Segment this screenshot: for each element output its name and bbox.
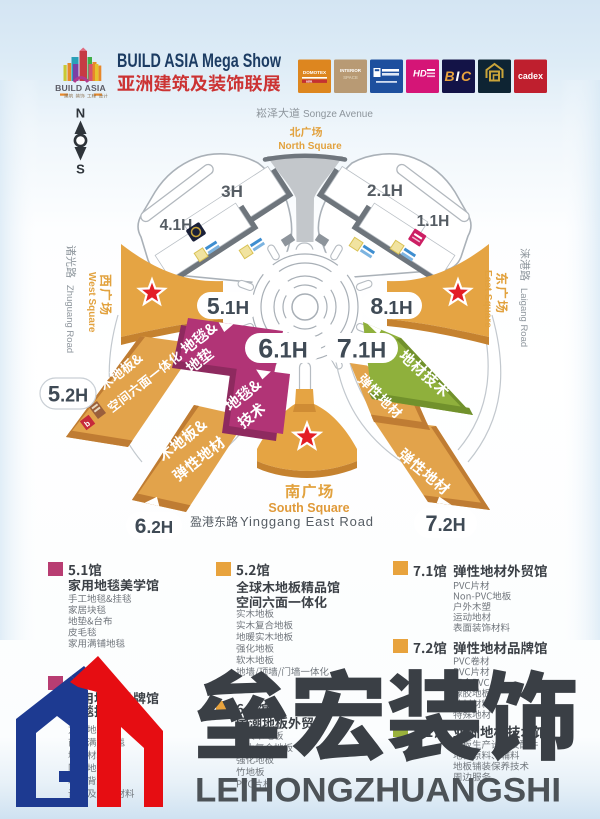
svg-text:1.1H: 1.1H [417,213,450,230]
svg-text:Songze Avenue: Songze Avenue [303,109,373,120]
svg-text:asia: asia [306,80,312,84]
svg-text:6.1H: 6.1H [258,334,307,364]
svg-text:North Square: North Square [278,141,342,152]
svg-text:South Square: South Square [268,501,349,515]
svg-text:BUILD ASIA Mega Show: BUILD ASIA Mega Show [117,51,281,72]
svg-text:cadex: cadex [518,71,543,81]
svg-text:2.1H: 2.1H [367,181,403,200]
svg-text:N: N [76,106,85,121]
svg-text:3H: 3H [221,182,243,201]
svg-text:West Square: West Square [86,272,97,333]
svg-text:DOMOTEX: DOMOTEX [303,70,327,75]
svg-text:Yinggang East Road: Yinggang East Road [240,514,373,529]
svg-text:S: S [76,162,85,177]
svg-text:East Square: East Square [482,270,493,328]
svg-text:BUILD ASIA: BUILD ASIA [55,83,106,93]
svg-text:C: C [461,68,472,84]
svg-text:7.2H: 7.2H [425,511,465,536]
svg-text:Laigang Road: Laigang Road [518,288,529,347]
svg-text:7.1H: 7.1H [337,334,386,364]
svg-text:6.2H: 6.2H [135,515,173,538]
svg-text:HD: HD [413,69,427,80]
svg-text:INTERIOR: INTERIOR [340,68,362,73]
svg-text:LEIHONGZHUANGSHI: LEIHONGZHUANGSHI [195,772,561,810]
svg-text:B: B [444,68,454,84]
svg-text:5.2H: 5.2H [48,381,88,406]
svg-text:SPACE: SPACE [343,75,358,80]
svg-text:Zhuguang Road: Zhuguang Road [64,285,75,353]
